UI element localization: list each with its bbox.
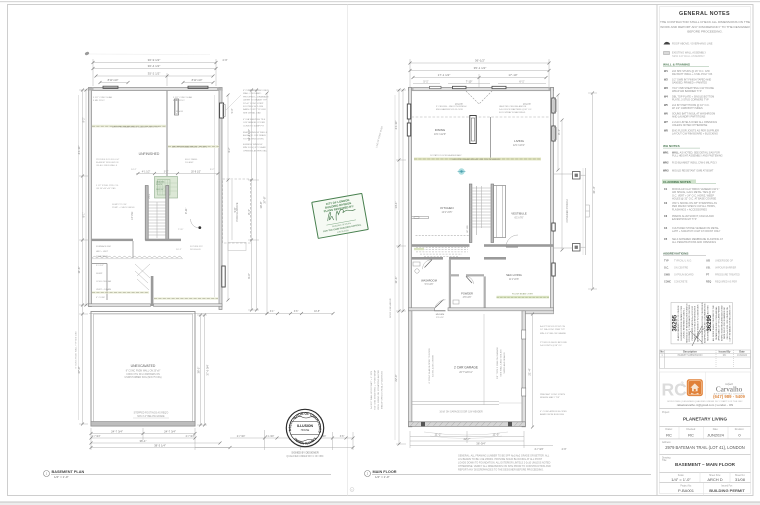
svg-text:MANUF SPECS C/W ALL FLASHINGS: MANUF SPECS C/W ALL FLASHINGS xyxy=(381,370,384,409)
svg-text:PT: PT xyxy=(706,274,710,277)
svg-text:6 MIL POLY: 6 MIL POLY xyxy=(173,100,185,102)
svg-text:MUDRM: MUDRM xyxy=(436,314,445,316)
svg-text:W/ 1/2" GWB BOTH SIDES: W/ 1/2" GWB BOTH SIDES xyxy=(672,107,703,110)
svg-text:ON CENTRE: ON CENTRE xyxy=(674,267,688,270)
svg-text:NEW 2x6 WALL ASSEMBLY: NEW 2x6 WALL ASSEMBLY xyxy=(672,54,705,58)
svg-text:9'-6": 9'-6" xyxy=(247,273,251,279)
svg-text:DROPPED BEAM W10x22 C/W POSTS: DROPPED BEAM W10x22 C/W POSTS EA END xyxy=(452,158,500,161)
svg-text:W1: W1 xyxy=(664,70,668,73)
svg-text:W5: W5 xyxy=(664,104,668,107)
svg-text:BLANKET INSULATION: BLANKET INSULATION xyxy=(96,161,119,164)
svg-text:6x6 W1.4xW1.4 WWM: 6x6 W1.4xW1.4 WWM xyxy=(433,355,435,377)
svg-text:9'-11": 9'-11" xyxy=(184,208,188,214)
svg-text:EGRESS WINDOW: EGRESS WINDOW xyxy=(243,144,263,146)
svg-text:3'-1": 3'-1" xyxy=(164,172,169,174)
svg-text:ROOF LINE ABOVE: ROOF LINE ABOVE xyxy=(389,298,392,318)
svg-text:AWAY FROM BUILDING: AWAY FROM BUILDING xyxy=(540,413,564,416)
svg-text:SEE DETAIL 1/A8: SEE DETAIL 1/A8 xyxy=(243,111,261,114)
svg-text:21'-10": 21'-10" xyxy=(77,146,81,155)
svg-text:REQ: REQ xyxy=(706,281,711,284)
svg-text:Date: Date xyxy=(739,350,745,353)
svg-text:SEC LIVING: SEC LIVING xyxy=(506,273,522,277)
svg-text:21'-10": 21'-10" xyxy=(394,121,398,130)
svg-text:Date:: Date: xyxy=(713,428,719,431)
svg-text:Checked:: Checked: xyxy=(686,429,696,431)
svg-text:2x6 EXT WALL W/ R22 BATT + 1": 2x6 EXT WALL W/ R22 BATT + 1" XPS xyxy=(370,370,373,409)
svg-text:DIV B PART 9 COMPLIANCE CHECKE: DIV B PART 9 COMPLIANCE CHECKED xyxy=(688,304,691,341)
svg-text:8" POURED CONC FNDN: 8" POURED CONC FNDN xyxy=(243,90,269,92)
svg-text:CONC: CONC xyxy=(664,281,671,284)
svg-text:BUILDING DIVISION ONTARIO CODE: BUILDING DIVISION ONTARIO CODE xyxy=(680,305,683,340)
svg-text:ELEC PANEL: ELEC PANEL xyxy=(185,158,199,161)
svg-text:36'-9 1/2": 36'-9 1/2" xyxy=(148,58,161,62)
svg-text:MIN 4'-0" BELOW GRADE: MIN 4'-0" BELOW GRADE xyxy=(137,415,165,418)
svg-text:VESTIBULE: VESTIBULE xyxy=(511,212,527,216)
svg-text:VINYL SIDING ON STRAPPING AS P: VINYL SIDING ON STRAPPING AS PER xyxy=(377,370,380,410)
svg-text:6'1"x7'6": 6'1"x7'6" xyxy=(514,217,523,220)
svg-text:COPY RETAINED FOR RECORDS CITY: COPY RETAINED FOR RECORDS CITY xyxy=(729,304,732,341)
svg-text:22'-6": 22'-6" xyxy=(394,374,398,381)
svg-text:W8x18: W8x18 xyxy=(176,111,184,113)
svg-text:36295: 36295 xyxy=(672,314,678,331)
svg-text:PLATE, 3 STUD CORNERS TYP: PLATE, 3 STUD CORNERS TYP xyxy=(672,99,709,102)
svg-text:WH1: WH1 xyxy=(663,152,669,155)
svg-text:11'1"x9'6": 11'1"x9'6" xyxy=(509,278,519,281)
svg-text:WORK AND REPORT ANY DISCREPANC: WORK AND REPORT ANY DISCREPANCY TO THE D… xyxy=(660,25,750,29)
svg-text:ARCH D: ARCH D xyxy=(707,477,722,482)
svg-text:GWB: GWB xyxy=(664,274,670,277)
svg-text:6 MIL POLY: 6 MIL POLY xyxy=(93,100,105,102)
svg-text:W3: W3 xyxy=(664,87,668,90)
svg-text:UNEXCAVATED: UNEXCAVATED xyxy=(131,364,156,368)
svg-text:PORCH ABOVE: PORCH ABOVE xyxy=(235,202,239,221)
svg-text:REPORT ANY DISCREPANCIES TO TH: REPORT ANY DISCREPANCIES TO THE DESIGNER… xyxy=(458,469,544,472)
svg-text:DROPPED BEAM W8x21 + POSTS: DROPPED BEAM W8x21 + POSTS xyxy=(172,146,207,149)
svg-text:CLADDING NOTES: CLADDING NOTES xyxy=(663,180,691,184)
svg-text:STEPPED FOOTINGS AS REQ'D: STEPPED FOOTINGS AS REQ'D xyxy=(134,412,169,415)
svg-text:MIN 4'-0" BELOW GRADE: MIN 4'-0" BELOW GRADE xyxy=(540,332,566,335)
svg-text:PLANETARY LIVING: PLANETARY LIVING xyxy=(683,417,727,422)
svg-text:Drawing: Drawing xyxy=(662,456,671,459)
svg-text:2979 BATEMAN TRAIL (LOT 41), L: 2979 BATEMAN TRAIL (LOT 41), LONDON xyxy=(665,445,745,450)
svg-text:17'-10": 17'-10" xyxy=(508,73,517,77)
svg-text:BEFORE PROCEEDING.: BEFORE PROCEEDING. xyxy=(687,30,722,34)
svg-text:W8: W8 xyxy=(664,130,668,133)
svg-text:OPENING AS PER OBC: OPENING AS PER OBC xyxy=(243,149,267,152)
svg-text:R22 BATT INSUL + 6 MIL POLY V.: R22 BATT INSUL + 6 MIL POLY V.B. xyxy=(672,73,713,76)
svg-text:C/W GRAVEL COVER: C/W GRAVEL COVER xyxy=(243,121,265,124)
svg-text:ENG HARDWOOD FLOOR: ENG HARDWOOD FLOOR xyxy=(436,108,463,111)
svg-text:10" DIA CONC PIER TYP: 10" DIA CONC PIER TYP xyxy=(540,328,565,331)
svg-text:2'-7 3/4": 2'-7 3/4" xyxy=(186,435,195,438)
svg-text:PT WOOD DECK BEYOND: PT WOOD DECK BEYOND xyxy=(540,342,567,344)
svg-text:No: No xyxy=(660,350,664,353)
svg-text:16' PATIO DOOR HEADER ABV: 16' PATIO DOOR HEADER ABV xyxy=(430,154,462,157)
svg-text:12'1"x13'1": 12'1"x13'1" xyxy=(513,144,525,147)
svg-text:HRV + HWT: HRV + HWT xyxy=(96,251,109,253)
svg-text:LATH + SCRATCH COAT AT FRONT O: LATH + SCRATCH COAT AT FRONT ONLY xyxy=(672,230,721,233)
svg-text:W2: W2 xyxy=(664,79,668,82)
svg-text:4" CONC SLAB SLOPED TO DOOR: 4" CONC SLAB SLOPED TO DOOR xyxy=(428,348,431,384)
svg-text:THIS REVIEW SHALL NOT BE CONST: THIS REVIEW SHALL NOT BE CONSTRUED xyxy=(701,302,704,344)
svg-text:5'-1": 5'-1" xyxy=(423,79,428,83)
svg-text:20'7"x20'11": 20'7"x20'11" xyxy=(459,371,473,374)
svg-text:LAYER TO GRADE TYP: LAYER TO GRADE TYP xyxy=(243,99,267,102)
svg-text:COLD CELLAR: COLD CELLAR xyxy=(96,280,112,283)
svg-text:6'-1": 6'-1" xyxy=(519,79,524,83)
svg-text:JUN2024: JUN2024 xyxy=(737,354,748,357)
svg-text:9' CEILING - SMOOTH FINISH: 9' CEILING - SMOOTH FINISH xyxy=(436,106,467,108)
svg-text:10'1"x12'9": 10'1"x12'9" xyxy=(434,133,446,136)
svg-text:INSPECTIONS REQUIRED AS LISTED: INSPECTIONS REQUIRED AS LISTED xyxy=(721,305,724,341)
svg-text:14'-1": 14'-1" xyxy=(394,201,398,208)
svg-text:7'-10": 7'-10" xyxy=(466,79,473,83)
svg-text:37'-0 3/4": 37'-0 3/4" xyxy=(206,364,210,375)
svg-text:4'-9": 4'-9" xyxy=(562,448,567,451)
svg-text:RC: RC xyxy=(723,354,727,357)
svg-text:2x8 JOISTS @16" OC: 2x8 JOISTS @16" OC xyxy=(540,345,562,347)
svg-text:2 CAR GARAGE: 2 CAR GARAGE xyxy=(454,366,478,370)
svg-text:Revision:: Revision: xyxy=(735,429,745,431)
svg-text:Issued By: Issued By xyxy=(719,350,731,353)
svg-text:FLUSH BEAM OVER: FLUSH BEAM OVER xyxy=(512,293,533,296)
svg-text:200 AMP: 200 AMP xyxy=(185,161,194,164)
svg-text:GYPSUM BOARD: GYPSUM BOARD xyxy=(674,274,694,277)
svg-text:3'6x3'6: 3'6x3'6 xyxy=(156,184,162,186)
svg-text:GENERAL NOTES: GENERAL NOTES xyxy=(679,11,730,17)
svg-text:rafaelcarvalho.rc@gmail.com |: rafaelcarvalho.rc@gmail.com | London - O… xyxy=(677,403,733,407)
svg-text:COVERED PORCH: COVERED PORCH xyxy=(565,199,569,222)
svg-text:36'-3/4": 36'-3/4" xyxy=(476,441,485,445)
svg-text:ONTARIO BUILDING CODE AND ALL: ONTARIO BUILDING CODE AND ALL xyxy=(715,305,718,340)
svg-text:QUALIFIED UNDER DIV C OF OBC: QUALIFIED UNDER DIV C OF OBC xyxy=(286,455,323,458)
svg-text:JUN2024: JUN2024 xyxy=(707,432,724,437)
svg-text:10'-1": 10'-1" xyxy=(176,249,182,251)
svg-text:Description: Description xyxy=(683,350,697,353)
svg-text:R-31 SPRAY FOAM INSUL: R-31 SPRAY FOAM INSUL xyxy=(499,111,526,114)
svg-text:35'-1 1/2": 35'-1 1/2" xyxy=(474,66,487,70)
svg-text:9'-2": 9'-2" xyxy=(83,117,86,122)
svg-text:KITCHEN: KITCHEN xyxy=(440,206,453,210)
svg-text:UNLESS NOTED OTHERWISE: UNLESS NOTED OTHERWISE xyxy=(672,124,708,127)
svg-text:4'-7 3/4": 4'-7 3/4" xyxy=(534,448,543,451)
svg-text:10'-5": 10'-5" xyxy=(314,311,320,313)
svg-text:DATE JUN 25 2024 EXAMINER JM: DATE JUN 25 2024 EXAMINER JM xyxy=(723,307,726,339)
svg-text:TYPICAL U.N.O.: TYPICAL U.N.O. xyxy=(674,260,692,263)
svg-text:W4: W4 xyxy=(664,96,668,99)
svg-text:1/4" = 1'-0": 1/4" = 1'-0" xyxy=(671,477,691,482)
svg-text:24'-7 3/4": 24'-7 3/4" xyxy=(164,429,176,433)
svg-text:PROVIDE R-20 FULL HT: PROVIDE R-20 FULL HT xyxy=(96,159,120,161)
svg-text:PRECAST CONC STEPS: PRECAST CONC STEPS xyxy=(540,393,566,396)
svg-text:SUMP PIT C/W: SUMP PIT C/W xyxy=(112,204,126,206)
svg-text:HOUSE: HOUSE xyxy=(301,429,310,432)
svg-text:UNDISTURBED SOIL (MIN 75 KPa): UNDISTURBED SOIL (MIN 75 KPa) xyxy=(125,377,162,379)
svg-text:8'11"x10": 8'11"x10" xyxy=(108,78,119,82)
svg-text:WALL C/W DAMP-: WALL C/W DAMP- xyxy=(243,92,262,95)
svg-text:ROOF ABOVE / OVERHANG LINE: ROOF ABOVE / OVERHANG LINE xyxy=(672,42,713,46)
svg-text:ILLUSION: ILLUSION xyxy=(297,424,313,428)
svg-text:VENT + DRAIN: VENT + DRAIN xyxy=(96,288,112,291)
svg-text:RC: RC xyxy=(688,432,694,437)
svg-text:MOULD RESISTANT GWB AT BSMT: MOULD RESISTANT GWB AT BSMT xyxy=(672,170,714,173)
svg-text:MIN 3.8 SQ FT CLEAR: MIN 3.8 SQ FT CLEAR xyxy=(243,146,266,149)
svg-text:20"x8" CONC STRIP: 20"x8" CONC STRIP xyxy=(243,103,264,105)
svg-text:REQUIRED AS PER: REQUIRED AS PER xyxy=(715,281,737,284)
svg-text:SUMP: SUMP xyxy=(96,273,103,275)
svg-text:8'-1": 8'-1" xyxy=(83,212,86,217)
svg-text:AS REQ'D C/W DRAIN: AS REQ'D C/W DRAIN xyxy=(243,134,266,137)
svg-text:41'-4": 41'-4" xyxy=(592,186,596,193)
svg-text:36'-5": 36'-5" xyxy=(197,367,201,374)
svg-text:5'1"x4'9": 5'1"x4'9" xyxy=(425,284,434,286)
svg-text:WRAP AIR BARRIER TYP: WRAP AIR BARRIER TYP xyxy=(672,90,702,93)
svg-text:22'-7": 22'-7" xyxy=(463,437,470,441)
svg-text:4'-1 1/2": 4'-1 1/2" xyxy=(142,172,151,174)
svg-text:3 1/2" CONC SLAB: 3 1/2" CONC SLAB xyxy=(173,96,192,99)
svg-text:WH NOTES: WH NOTES xyxy=(663,144,680,148)
svg-text:38'-3 1/4": 38'-3 1/4" xyxy=(154,443,166,447)
svg-text:9'-2": 9'-2" xyxy=(210,169,215,171)
svg-text:POWDER: POWDER xyxy=(461,292,473,296)
svg-text:4" CONC: 4" CONC xyxy=(96,297,105,299)
svg-text:AND LAUNDRY PARTITIONS: AND LAUNDRY PARTITIONS xyxy=(672,116,706,119)
svg-text:2'-7 3/4": 2'-7 3/4" xyxy=(92,435,101,438)
svg-text:HOLES @ 32" O.C. AT BASE COURS: HOLES @ 32" O.C. AT BASE COURSE xyxy=(672,198,717,201)
svg-text:UNDERSIDE OF: UNDERSIDE OF xyxy=(715,260,734,263)
svg-text:Carvalho: Carvalho xyxy=(716,385,743,393)
svg-text:U/S: U/S xyxy=(706,260,710,263)
svg-text:3'-6": 3'-6" xyxy=(294,311,299,313)
svg-text:PUMP + CHECK VALVE: PUMP + CHECK VALVE xyxy=(112,206,135,209)
svg-text:3'-1 1/2": 3'-1 1/2" xyxy=(96,265,104,267)
svg-text:8" CONC FNDN WALL TYP SEE 1/A8: 8" CONC FNDN WALL TYP SEE 1/A8 xyxy=(75,331,78,369)
svg-text:11'-6": 11'-6" xyxy=(394,277,398,284)
svg-text:4'6"x4'9": 4'6"x4'9" xyxy=(463,297,472,299)
svg-text:FOOTING W/ 2-15M: FOOTING W/ 2-15M xyxy=(243,106,263,108)
svg-text:16'x8' OH GARAGE DOOR C/W HEAD: 16'x8' OH GARAGE DOOR C/W HEADER xyxy=(439,411,483,414)
svg-text:BASEMENT PLAN: BASEMENT PLAN xyxy=(52,470,85,474)
svg-text:LIVING: LIVING xyxy=(514,139,525,143)
svg-text:4'-9": 4'-9" xyxy=(222,58,227,62)
svg-text:SANDED, PRIMED + PAINTED: SANDED, PRIMED + PAINTED xyxy=(672,82,707,85)
svg-text:MAIN FLOOR: MAIN FLOOR xyxy=(373,470,397,474)
svg-text:ALL PENETRATIONS AND OPENINGS: ALL PENETRATIONS AND OPENINGS xyxy=(672,241,716,244)
svg-text:PERMIT APPLICATION No 24-01562: PERMIT APPLICATION No 24-015623 xyxy=(691,305,694,340)
svg-text:3'-1": 3'-1" xyxy=(270,311,275,313)
svg-text:DINING: DINING xyxy=(435,128,446,132)
svg-text:PROOFING + DRAINAGE: PROOFING + DRAINAGE xyxy=(243,95,269,98)
svg-text:3 1/2" CONC SLAB: 3 1/2" CONC SLAB xyxy=(93,96,112,99)
svg-text:FULL HEIGHT ASSEMBLY AND FASTE: FULL HEIGHT ASSEMBLY AND FASTENING xyxy=(672,155,723,158)
svg-text:4" DIA WEEPING TILE: 4" DIA WEEPING TILE xyxy=(243,118,266,121)
svg-text:O.C.: O.C. xyxy=(664,267,669,270)
svg-text:TO FOOTING LEVEL: TO FOOTING LEVEL xyxy=(243,138,265,140)
svg-text:(647) 989 - 5409: (647) 989 - 5409 xyxy=(713,394,745,399)
svg-text:PRESSURE TREATED: PRESSURE TREATED xyxy=(715,274,740,277)
svg-text:DROPPED BEAM W8x21 + (2)2x6 PO: DROPPED BEAM W8x21 + (2)2x6 POSTS TYP xyxy=(112,125,159,128)
svg-text:11'-6": 11'-6" xyxy=(77,267,81,274)
svg-text:VAULTED CEILING ABOVE: VAULTED CEILING ABOVE xyxy=(499,105,527,108)
svg-text:37'-0": 37'-0" xyxy=(77,366,81,373)
svg-text:W7: W7 xyxy=(664,121,668,124)
svg-text:7/16" OSB SHEATHING + TYVEK WR: 7/16" OSB SHEATHING + TYVEK WRAP xyxy=(374,369,377,410)
svg-text:R-20 BLANKET INSUL C/W 6 MIL P: R-20 BLANKET INSUL C/W 6 MIL POLY xyxy=(672,162,717,165)
svg-text:FILE No B-2024-1234 LONDON ON: FILE No B-2024-1234 LONDON ON xyxy=(727,307,729,340)
svg-text:VAPOUR BARRIER: VAPOUR BARRIER xyxy=(715,267,736,270)
svg-text:SIDE WALLS AND CEILING: SIDE WALLS AND CEILING xyxy=(500,349,503,377)
svg-text:CONCRETE: CONCRETE xyxy=(674,281,688,284)
svg-text:36'-1/2": 36'-1/2" xyxy=(475,59,485,63)
svg-text:WALL & FRAMING: WALL & FRAMING xyxy=(663,63,691,67)
svg-text:SIGNED BY DESIGNER: SIGNED BY DESIGNER xyxy=(291,452,319,455)
svg-text:2x10 ROOF RAFTERS @16" OC: 2x10 ROOF RAFTERS @16" OC xyxy=(499,108,532,111)
svg-text:Drawn:: Drawn: xyxy=(665,428,673,431)
svg-text:FUTURE 3PC: FUTURE 3PC xyxy=(190,246,204,248)
svg-text:8'-1": 8'-1" xyxy=(557,129,561,135)
svg-text:37'-8": 37'-8" xyxy=(263,196,267,203)
svg-text:8" CONC FNDN WALL ON 20"x8": 8" CONC FNDN WALL ON 20"x8" xyxy=(126,370,161,373)
svg-text:36'-4 1/2": 36'-4 1/2" xyxy=(148,64,161,68)
svg-text:FURNACE RM: FURNACE RM xyxy=(96,245,111,248)
svg-text:EAVESTROUGH TYP: EAVESTROUGH TYP xyxy=(672,218,697,221)
svg-text:Title:: Title: xyxy=(662,459,667,462)
svg-text:31/08: 31/08 xyxy=(735,477,746,482)
svg-text:ZONING REVIEWED BY-LAW Z-1: ZONING REVIEWED BY-LAW Z-1 xyxy=(683,307,686,338)
svg-text:11'-5": 11'-5" xyxy=(493,432,500,436)
svg-text:BUILDING PERMIT: BUILDING PERMIT xyxy=(709,488,745,493)
svg-text:21'-4": 21'-4" xyxy=(528,368,532,375)
svg-text:ROUGH-IN: ROUGH-IN xyxy=(190,249,201,251)
svg-text:UP 15R: UP 15R xyxy=(131,211,134,220)
svg-text:5/8" TYPE X GWB ON GARAGE: 5/8" TYPE X GWB ON GARAGE xyxy=(496,347,499,379)
svg-text:CONN TO SUMP PIT: CONN TO SUMP PIT xyxy=(243,125,265,127)
svg-text:35'-2 1/2": 35'-2 1/2" xyxy=(148,72,161,76)
svg-text:FLASHINGS + ACCESSORIES: FLASHINGS + ACCESSORIES xyxy=(672,208,707,211)
svg-text:11'-2": 11'-2" xyxy=(435,432,442,436)
svg-text:ABBREVIATIONS: ABBREVIATIONS xyxy=(663,252,688,256)
svg-text:36295: 36295 xyxy=(707,314,713,331)
svg-text:20'-9 1/2": 20'-9 1/2" xyxy=(191,172,201,174)
svg-text:PERMIT SUBMISSION: PERMIT SUBMISSION xyxy=(678,354,703,357)
svg-text:WDR 36": WDR 36" xyxy=(156,189,164,191)
svg-text:CONC FTG W/ 2-15M BARS ON: CONC FTG W/ 2-15M BARS ON xyxy=(126,373,160,376)
svg-text:V.B.: V.B. xyxy=(706,267,711,270)
svg-text:BASEMENT – MAIN FLOOR: BASEMENT – MAIN FLOOR xyxy=(675,462,736,467)
svg-text:5'-0": 5'-0" xyxy=(231,108,234,113)
svg-text:RC: RC xyxy=(666,432,672,437)
svg-text:W6: W6 xyxy=(664,113,668,116)
svg-text:APPLICABLE CITY BY-LAWS PERMIT: APPLICABLE CITY BY-LAWS PERMIT xyxy=(718,305,721,340)
svg-text:10'1"x9'5": 10'1"x9'5" xyxy=(442,211,453,214)
svg-text:8x8 PT WOOD POST ON: 8x8 PT WOOD POST ON xyxy=(540,326,565,328)
svg-text:15 R: 15 R xyxy=(148,194,151,199)
svg-text:SENTENCE OF REVIEW NOTES FORM: SENTENCE OF REVIEW NOTES FORM 24 xyxy=(687,303,689,343)
svg-text:BARS CONT TYP UNO: BARS CONT TYP UNO xyxy=(243,108,266,111)
svg-text:RISERS MAX 7 7/8": RISERS MAX 7 7/8" xyxy=(540,396,560,399)
svg-text:WH2: WH2 xyxy=(663,162,669,165)
svg-text:LANDING: LANDING xyxy=(156,181,165,184)
svg-text:Project:: Project: xyxy=(662,411,670,414)
svg-text:7'-11": 7'-11" xyxy=(178,229,184,231)
svg-text:UNFINISHED: UNFINISHED xyxy=(139,152,160,156)
svg-text:1/4" = 1'-0": 1/4" = 1'-0" xyxy=(375,475,390,479)
svg-text:3'-1 3/4": 3'-1 3/4" xyxy=(266,436,275,438)
svg-text:WH3: WH3 xyxy=(663,170,669,173)
svg-text:UP 15R: UP 15R xyxy=(467,225,469,233)
svg-text:14'-2": 14'-2" xyxy=(131,169,137,171)
svg-text:17'-1 1/2": 17'-1 1/2" xyxy=(438,73,451,77)
svg-text:6'-2": 6'-2" xyxy=(228,147,231,152)
svg-text:2'-7 3/4": 2'-7 3/4" xyxy=(237,436,246,438)
svg-text:BSMT WINDOW WELLS: BSMT WINDOW WELLS xyxy=(243,132,268,134)
svg-text:TAPED AND SEALED: TAPED AND SEALED xyxy=(503,352,506,374)
svg-text:8'11"x10": 8'11"x10" xyxy=(192,78,203,82)
svg-text:ON 36"x36"x16" PAD: ON 36"x36"x16" PAD xyxy=(96,187,116,190)
svg-text:4" CONC APRON SLOPED: 4" CONC APRON SLOPED xyxy=(540,410,567,413)
svg-text:3'-6": 3'-6" xyxy=(340,436,345,438)
svg-text:36'-1": 36'-1" xyxy=(139,439,146,443)
svg-text:TYP: TYP xyxy=(664,260,669,263)
svg-text:3 1/2" STEEL PIPE COL: 3 1/2" STEEL PIPE COL xyxy=(96,185,119,187)
svg-text:ON ALL FNDN WALLS: ON ALL FNDN WALLS xyxy=(96,164,118,167)
svg-text:1/4" = 1'-0": 1/4" = 1'-0" xyxy=(54,475,69,479)
svg-text:LAYOUT C/W RIM BOARD + BLOCKIN: LAYOUT C/W RIM BOARD + BLOCKING xyxy=(672,133,718,136)
svg-text:P-BA001: P-BA001 xyxy=(678,488,695,493)
svg-text:Address:: Address: xyxy=(662,441,671,444)
svg-text:THE CONTRACTOR SHALL CHECK ALL: THE CONTRACTOR SHALL CHECK ALL DIMENSION… xyxy=(660,20,750,24)
svg-text:5'8"x3'6": 5'8"x3'6" xyxy=(436,317,444,319)
svg-text:24'-7 3/4": 24'-7 3/4" xyxy=(111,429,123,433)
svg-text:WASHROOM: WASHROOM xyxy=(421,279,437,283)
